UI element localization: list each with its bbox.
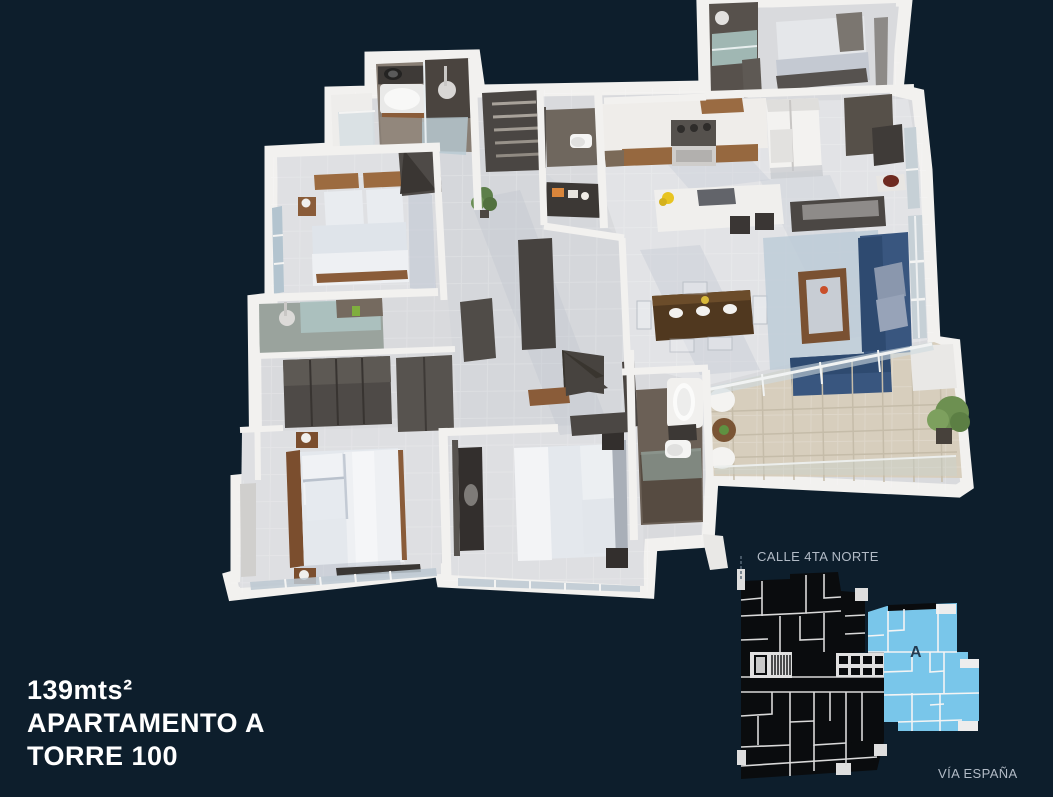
svg-text:A: A	[910, 644, 922, 661]
